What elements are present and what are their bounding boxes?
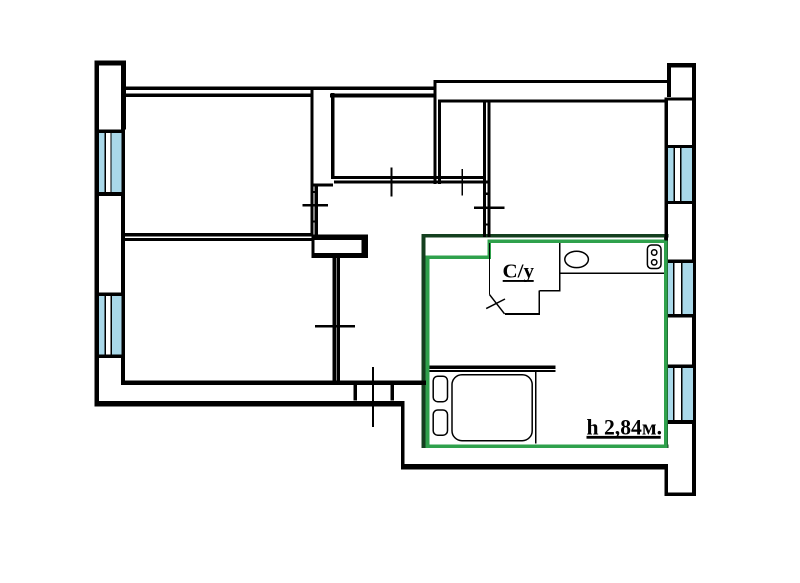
svg-text:h 2,84м.: h 2,84м. xyxy=(587,415,663,440)
svg-text:С/у: С/у xyxy=(503,261,535,283)
